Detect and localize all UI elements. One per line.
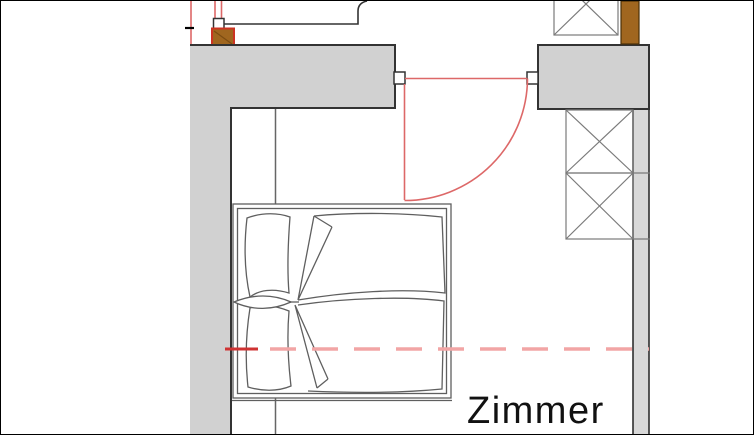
upper-room-outline (223, 1, 367, 24)
brace-diagonal (554, 1, 618, 35)
door-swing (405, 79, 528, 201)
floor-plan-drawing: Zimmer (1, 1, 754, 435)
brace-frame (554, 1, 618, 35)
wood-post-icon (621, 1, 639, 44)
pillow-top (245, 214, 290, 297)
cross-braced-column-top (554, 1, 639, 44)
wall-block-right (538, 45, 649, 109)
room-label: Zimmer (467, 390, 605, 432)
strip-fill (633, 110, 649, 435)
door-jamb-block (394, 72, 405, 84)
brace-diagonal (554, 1, 618, 35)
double-bed (232, 204, 452, 401)
window-frame-box (214, 19, 225, 29)
wall-strip-right (633, 110, 649, 435)
floor-plan: Zimmer (0, 0, 754, 435)
door-swing-arc (405, 79, 528, 201)
door-jamb-block (527, 72, 538, 84)
upper-room-wall-line (223, 1, 367, 24)
wall-fill-shape (538, 45, 649, 109)
